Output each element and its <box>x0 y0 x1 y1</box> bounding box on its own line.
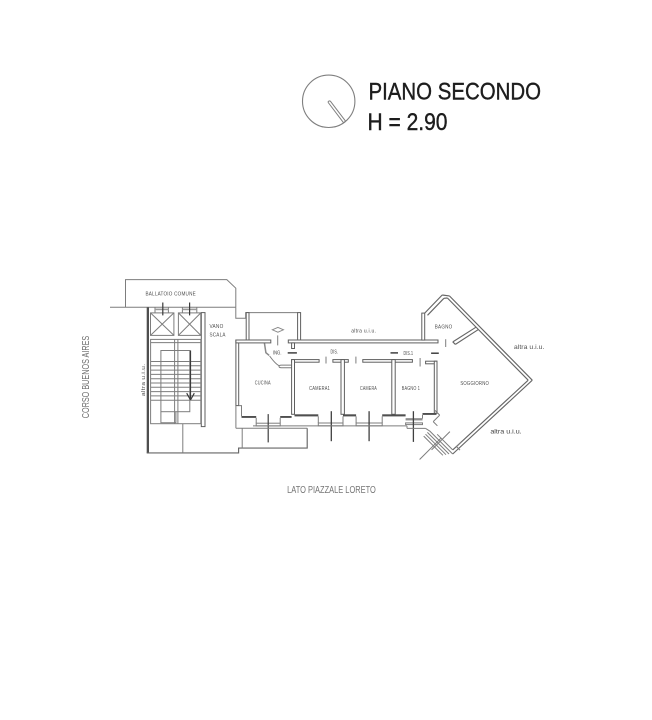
svg-text:CAMERA: CAMERA <box>360 386 377 392</box>
svg-text:VANO: VANO <box>210 324 224 330</box>
svg-text:altra u.i.u.: altra u.i.u. <box>141 364 147 396</box>
svg-text:PIANO SECONDO: PIANO SECONDO <box>369 80 542 106</box>
svg-text:altra u.i.u.: altra u.i.u. <box>490 429 522 436</box>
svg-text:ING.: ING. <box>273 350 282 356</box>
svg-text:SCALA: SCALA <box>210 332 226 338</box>
svg-text:altra u.i.u.: altra u.i.u. <box>514 344 545 351</box>
svg-text:CORSO BUENOS AIRES: CORSO BUENOS AIRES <box>81 336 92 419</box>
svg-text:CAMERA1: CAMERA1 <box>309 386 330 392</box>
svg-text:BALLATOIO COMUNE: BALLATOIO COMUNE <box>145 291 196 297</box>
svg-text:SOGGIORNO: SOGGIORNO <box>460 381 489 387</box>
svg-text:BAGNO: BAGNO <box>435 324 453 330</box>
svg-text:altra u.i.u.: altra u.i.u. <box>351 329 376 335</box>
svg-text:DIS.: DIS. <box>330 350 338 356</box>
svg-text:H = 2.90: H = 2.90 <box>368 110 448 136</box>
svg-text:CUCINA: CUCINA <box>255 380 271 386</box>
svg-text:DIS.1: DIS.1 <box>404 351 414 357</box>
svg-text:LATO PIAZZALE LORETO: LATO PIAZZALE LORETO <box>287 485 376 496</box>
svg-text:BAGNO 1: BAGNO 1 <box>402 386 420 392</box>
